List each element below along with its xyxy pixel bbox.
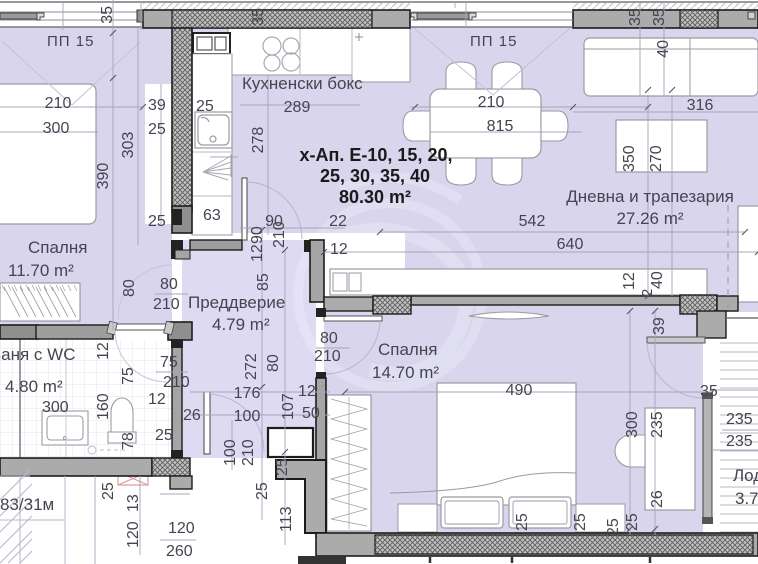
svg-text:278: 278: [250, 127, 267, 154]
svg-text:25: 25: [605, 518, 622, 536]
svg-text:75: 75: [160, 354, 178, 371]
svg-text:25: 25: [254, 482, 271, 500]
svg-text:235: 235: [726, 433, 753, 450]
svg-text:14.70 m²: 14.70 m²: [372, 363, 439, 382]
svg-text:Дневна и трапезария: Дневна и трапезария: [566, 187, 734, 206]
svg-text:80: 80: [320, 330, 338, 347]
svg-text:100: 100: [222, 439, 239, 466]
svg-text:35: 35: [250, 8, 267, 26]
svg-text:ПП 15: ПП 15: [470, 33, 517, 50]
svg-text:4.79 m²: 4.79 m²: [212, 315, 270, 334]
svg-text:210: 210: [153, 296, 180, 313]
svg-text:Лодж: Лодж: [733, 466, 758, 485]
svg-text:390: 390: [95, 163, 112, 190]
svg-text:50: 50: [302, 405, 320, 422]
svg-text:90: 90: [249, 226, 266, 244]
svg-text:300: 300: [43, 120, 70, 137]
svg-text:300: 300: [624, 411, 641, 438]
svg-text:25: 25: [155, 427, 173, 444]
svg-text:85: 85: [255, 273, 272, 291]
svg-text:235: 235: [726, 411, 753, 428]
svg-text:210: 210: [314, 348, 341, 365]
svg-text:25: 25: [274, 458, 291, 476]
svg-text:113: 113: [278, 506, 295, 532]
svg-text:160: 160: [95, 393, 112, 420]
svg-text:78: 78: [120, 432, 137, 450]
svg-text:63: 63: [203, 207, 221, 224]
svg-text:120: 120: [125, 521, 142, 548]
svg-text:Кухненски бокс: Кухненски бокс: [242, 74, 363, 93]
svg-text:26: 26: [183, 407, 201, 424]
svg-text:39: 39: [148, 97, 166, 114]
svg-text:26: 26: [649, 490, 666, 508]
svg-text:25: 25: [148, 213, 166, 230]
svg-text:210: 210: [240, 439, 257, 466]
svg-text:25: 25: [514, 513, 531, 531]
svg-text:х-Ап. Е-10, 15, 20,: х-Ап. Е-10, 15, 20,: [300, 145, 453, 165]
svg-text:Баня с WC: Баня с WC: [0, 345, 75, 364]
svg-text:35: 35: [700, 383, 718, 400]
svg-text:272: 272: [243, 353, 260, 380]
svg-text:235: 235: [649, 411, 666, 438]
svg-text:40: 40: [655, 40, 672, 58]
svg-text:25: 25: [100, 482, 117, 500]
svg-text:35: 35: [651, 8, 668, 26]
svg-text:11.70 m²: 11.70 m²: [8, 261, 74, 280]
svg-text:35: 35: [99, 6, 116, 24]
svg-text:22: 22: [329, 213, 347, 230]
svg-text:12: 12: [95, 342, 112, 360]
svg-text:210: 210: [163, 374, 190, 391]
svg-text:260: 260: [166, 543, 193, 560]
svg-text:210: 210: [478, 94, 505, 111]
svg-text:25: 25: [624, 513, 641, 531]
svg-text:ПП 15: ПП 15: [47, 33, 94, 50]
svg-text:4.80 m²: 4.80 m²: [5, 377, 63, 396]
svg-text:640: 640: [557, 236, 584, 253]
svg-text:80: 80: [121, 279, 138, 297]
svg-text:25: 25: [148, 121, 166, 138]
svg-text:12: 12: [621, 272, 638, 290]
svg-text:107: 107: [280, 393, 297, 420]
svg-text:12: 12: [330, 241, 348, 258]
svg-text:75: 75: [120, 367, 137, 385]
svg-text:12: 12: [298, 383, 316, 400]
svg-text:542: 542: [519, 213, 546, 230]
svg-text:35: 35: [627, 8, 644, 26]
svg-text:12: 12: [249, 244, 266, 262]
svg-text:300: 300: [42, 399, 69, 416]
svg-text:13: 13: [125, 494, 142, 512]
svg-text:3.74: 3.74: [735, 489, 758, 508]
svg-text:815: 815: [487, 118, 514, 135]
svg-text:25: 25: [572, 513, 589, 531]
svg-text:83/31м: 83/31м: [0, 495, 54, 514]
svg-text:40: 40: [649, 271, 666, 289]
svg-text:490: 490: [506, 382, 533, 399]
svg-text:80: 80: [160, 276, 178, 293]
svg-text:210: 210: [271, 221, 288, 248]
svg-text:12: 12: [148, 391, 166, 408]
svg-text:270: 270: [648, 145, 665, 172]
svg-text:80: 80: [265, 354, 282, 372]
svg-text:289: 289: [284, 99, 311, 116]
svg-text:25, 30, 35, 40: 25, 30, 35, 40: [320, 166, 430, 186]
svg-text:210: 210: [45, 95, 72, 112]
svg-text:350: 350: [621, 145, 638, 172]
svg-text:Спалня: Спалня: [378, 340, 437, 359]
svg-text:39: 39: [651, 317, 668, 335]
svg-text:316: 316: [687, 97, 714, 114]
svg-text:80.30 m²: 80.30 m²: [339, 187, 411, 207]
svg-text:27.26 m²: 27.26 m²: [616, 209, 683, 228]
svg-text:Преддверие: Преддверие: [188, 293, 285, 312]
svg-text:100: 100: [234, 408, 261, 425]
svg-text:303: 303: [120, 132, 137, 159]
svg-text:Спалня: Спалня: [28, 238, 87, 257]
svg-text:120: 120: [168, 520, 195, 537]
svg-text:25: 25: [196, 98, 214, 115]
svg-text:176: 176: [234, 385, 261, 402]
